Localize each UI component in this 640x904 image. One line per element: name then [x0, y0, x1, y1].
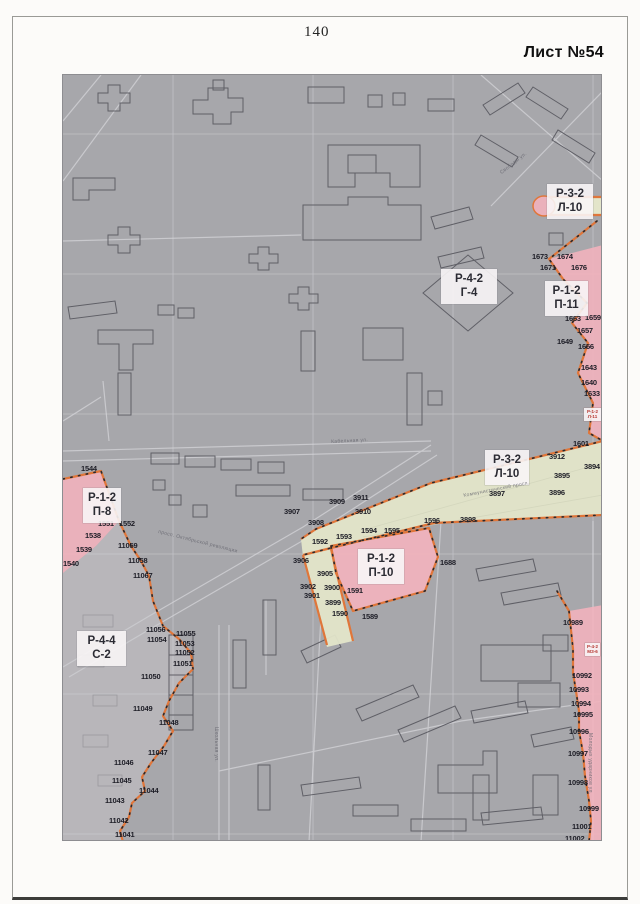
parcel-label-1589: 1589	[362, 613, 378, 621]
parcel-label-11067: 11067	[133, 572, 152, 580]
street-label: Кабельная ул.	[331, 437, 368, 445]
parcel-label-10992: 10992	[572, 672, 592, 680]
zone-label-line: Р-1-2	[85, 491, 119, 505]
parcel-label-11050: 11050	[141, 673, 160, 681]
parcel-label-3902: 3902	[300, 583, 316, 591]
parcel-label-1593: 1593	[336, 533, 352, 541]
parcel-label-1663: 1663	[565, 315, 581, 323]
parcel-label-1544: 1544	[81, 465, 97, 473]
parcel-label-3911: 3911	[353, 494, 368, 502]
parcel-label-10989: 10989	[563, 619, 583, 627]
parcel-label-11049: 11049	[133, 705, 152, 713]
street-label: Школьная ул.	[213, 727, 219, 762]
parcel-label-10996: 10996	[569, 728, 589, 736]
street-label: Свободы ул.	[499, 151, 528, 176]
parcel-label-11051: 11051	[173, 660, 192, 668]
parcel-label-1657: 1657	[577, 327, 593, 335]
parcel-label-11001: 11001	[572, 823, 591, 831]
parcel-label-11043: 11043	[105, 797, 124, 805]
zone-label-line: Р-1-2	[360, 552, 402, 566]
parcel-label-11054: 11054	[147, 636, 166, 644]
zone-label-line: МЗ-6	[585, 649, 600, 654]
parcel-label-1674: 1674	[557, 253, 573, 261]
parcel-label-10997: 10997	[568, 750, 588, 758]
parcel-label-3898: 3898	[460, 516, 476, 524]
page-number: 140	[304, 24, 330, 41]
parcel-label-1538: 1538	[85, 532, 101, 540]
zone-label-Р-3-2-Л-10: Р-3-2Л-10	[547, 184, 593, 219]
parcel-label-1649: 1649	[557, 338, 573, 346]
parcel-label-1539: 1539	[76, 546, 92, 554]
parcel-label-11047: 11047	[148, 749, 167, 757]
zone-label-Р-1-2-П-11: Р-1-2П-11	[545, 281, 588, 316]
parcel-label-10993: 10993	[569, 686, 589, 694]
parcel-label-1643: 1643	[581, 364, 597, 372]
sheet-label: Лист №54	[524, 44, 604, 62]
parcel-label-1601: 1601	[573, 440, 589, 448]
parcel-label-11041: 11041	[115, 831, 134, 839]
parcel-label-11058: 11058	[128, 557, 147, 565]
parcel-label-11059: 11059	[118, 542, 137, 550]
zone-label-Р-1-2-Л-11: Р-1-2Л-11	[584, 408, 601, 421]
parcel-label-1552: 1552	[119, 520, 135, 528]
zone-label-Р-4-2-МЗ-6: Р-4-2МЗ-6	[585, 643, 600, 656]
parcel-label-1595: 1595	[384, 527, 400, 535]
parcel-label-3896: 3896	[549, 489, 565, 497]
zone-label-Р-3-2-Л-10: Р-3-2Л-10	[485, 450, 529, 485]
parcel-label-3905: 3905	[317, 570, 333, 578]
zone-label-Р-4-2-Г-4: Р-4-2Г-4	[441, 269, 497, 304]
parcel-label-3910: 3910	[355, 508, 371, 516]
parcel-label-1594: 1594	[361, 527, 377, 535]
parcel-label-3907: 3907	[284, 508, 300, 516]
parcel-label-11002: 11002	[565, 835, 584, 841]
zone-label-line: Р-4-4	[79, 634, 124, 648]
parcel-label-10994: 10994	[571, 700, 591, 708]
parcel-label-1540: 1540	[63, 560, 79, 568]
parcel-label-1591: 1591	[347, 587, 363, 595]
parcel-label-11045: 11045	[112, 777, 131, 785]
parcel-label-3901: 3901	[304, 592, 320, 600]
zone-label-line: Л-10	[549, 201, 591, 215]
parcel-label-1688: 1688	[440, 559, 456, 567]
parcel-label-3894: 3894	[584, 463, 600, 471]
parcel-label-3906: 3906	[293, 557, 309, 565]
parcel-label-11052: 11052	[175, 649, 194, 657]
map-overlays: 1673167416711676166316591657164916561643…	[63, 75, 601, 840]
parcel-label-3912: 3912	[549, 453, 565, 461]
zone-label-line: П-10	[360, 566, 402, 580]
parcel-label-11044: 11044	[139, 787, 158, 795]
zone-label-line: Р-3-2	[487, 453, 527, 467]
parcel-label-1640: 1640	[581, 379, 597, 387]
parcel-label-11053: 11053	[175, 640, 194, 648]
parcel-label-3895: 3895	[554, 472, 570, 480]
zone-label-line: Л-10	[487, 467, 527, 481]
parcel-label-11055: 11055	[176, 630, 195, 638]
street-label: просп. Октябрьской революции	[158, 529, 239, 555]
parcel-label-10998: 10998	[568, 779, 588, 787]
zone-label-line: Г-4	[443, 286, 495, 300]
parcel-label-11046: 11046	[114, 759, 133, 767]
zone-label-Р-1-2-П-8: Р-1-2П-8	[83, 488, 121, 523]
parcel-label-1676: 1676	[571, 264, 587, 272]
zone-label-line: Л-11	[584, 414, 601, 419]
parcel-label-1633: 1633	[584, 390, 600, 398]
parcel-label-10995: 10995	[573, 711, 593, 719]
zone-label-Р-4-4-С-2: Р-4-4С-2	[77, 631, 126, 666]
zone-label-line: П-8	[85, 505, 119, 519]
parcel-label-11056: 11056	[146, 626, 165, 634]
zone-label-line: Р-4-2	[443, 272, 495, 286]
zone-label-line: Р-1-2	[547, 284, 586, 298]
zone-label-Р-1-2-П-10: Р-1-2П-10	[358, 549, 404, 584]
parcel-label-1656: 1656	[578, 343, 594, 351]
parcel-label-1592: 1592	[312, 538, 328, 546]
parcel-label-3899: 3899	[325, 599, 341, 607]
parcel-label-10999: 10999	[579, 805, 599, 813]
zone-label-line: П-11	[547, 298, 586, 312]
parcel-label-11048: 11048	[159, 719, 178, 727]
scanned-map-page: 140 Лист №54	[0, 0, 640, 904]
parcel-label-1596: 1596	[424, 517, 440, 525]
parcel-label-3908: 3908	[308, 519, 324, 527]
zone-label-line: С-2	[79, 648, 124, 662]
parcel-label-11042: 11042	[109, 817, 128, 825]
parcel-label-3900: 3900	[324, 584, 340, 592]
parcel-label-1671: 1671	[540, 264, 556, 272]
parcel-label-1590: 1590	[332, 610, 348, 618]
zoning-map-canvas: 1673167416711676166316591657164916561643…	[62, 74, 602, 841]
parcel-label-3909: 3909	[329, 498, 345, 506]
street-label: Молодых ударников ул.	[587, 733, 593, 794]
zone-label-line: Р-3-2	[549, 187, 591, 201]
parcel-label-1673: 1673	[532, 253, 548, 261]
